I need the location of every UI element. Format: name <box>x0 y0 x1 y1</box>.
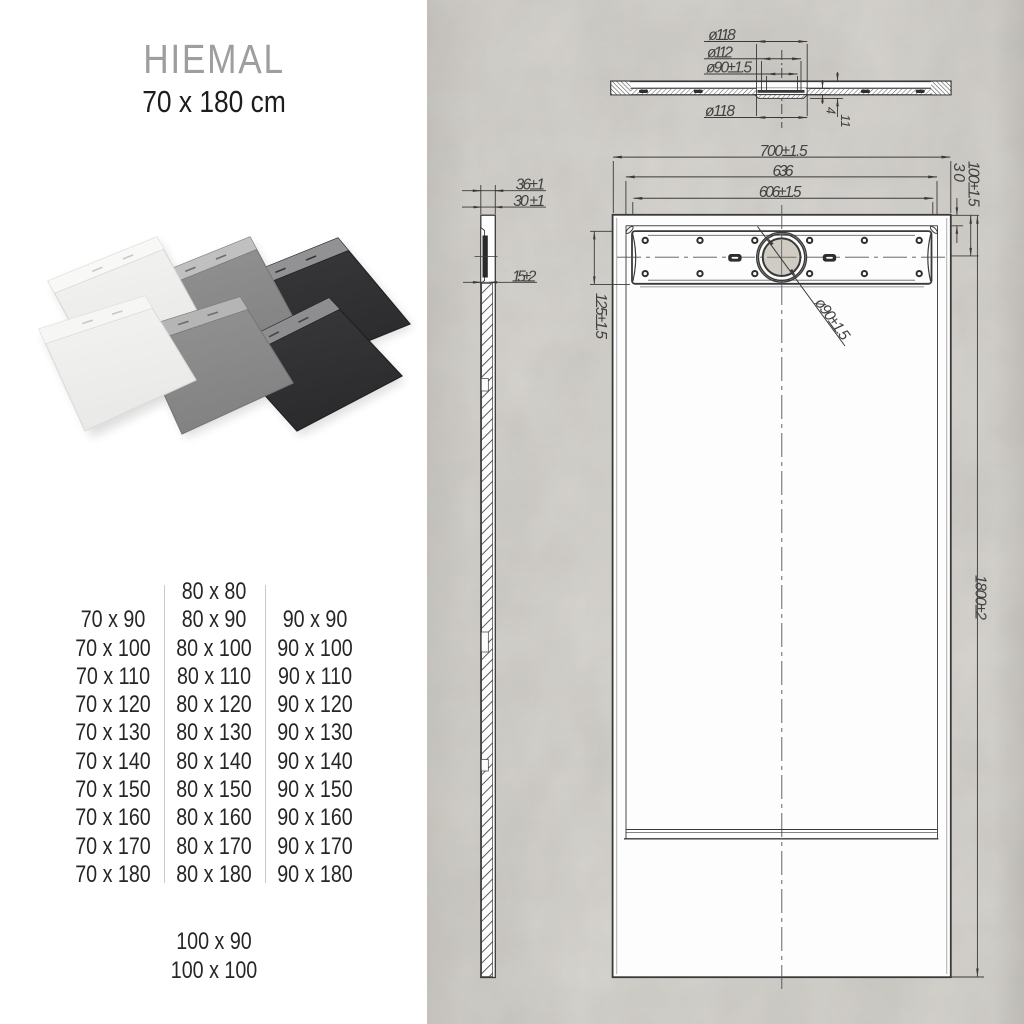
svg-text:636: 636 <box>773 163 794 180</box>
svg-text:ø118: ø118 <box>705 103 735 120</box>
svg-text:ø90±1.5: ø90±1.5 <box>706 60 752 77</box>
svg-text:11: 11 <box>838 114 853 128</box>
svg-text:100±1.5: 100±1.5 <box>965 161 982 207</box>
svg-text:1800±2: 1800±2 <box>972 575 989 620</box>
svg-text:30 ±1: 30 ±1 <box>513 193 545 210</box>
svg-text:ø118: ø118 <box>708 27 736 44</box>
svg-text:700±1.5: 700±1.5 <box>760 143 808 160</box>
svg-text:4: 4 <box>824 107 839 114</box>
svg-text:36±1: 36±1 <box>516 177 545 194</box>
svg-text:15±2: 15±2 <box>512 268 537 285</box>
svg-text:30: 30 <box>950 163 967 182</box>
svg-text:125±1.5: 125±1.5 <box>592 293 609 339</box>
svg-text:606±1.5: 606±1.5 <box>759 184 802 201</box>
